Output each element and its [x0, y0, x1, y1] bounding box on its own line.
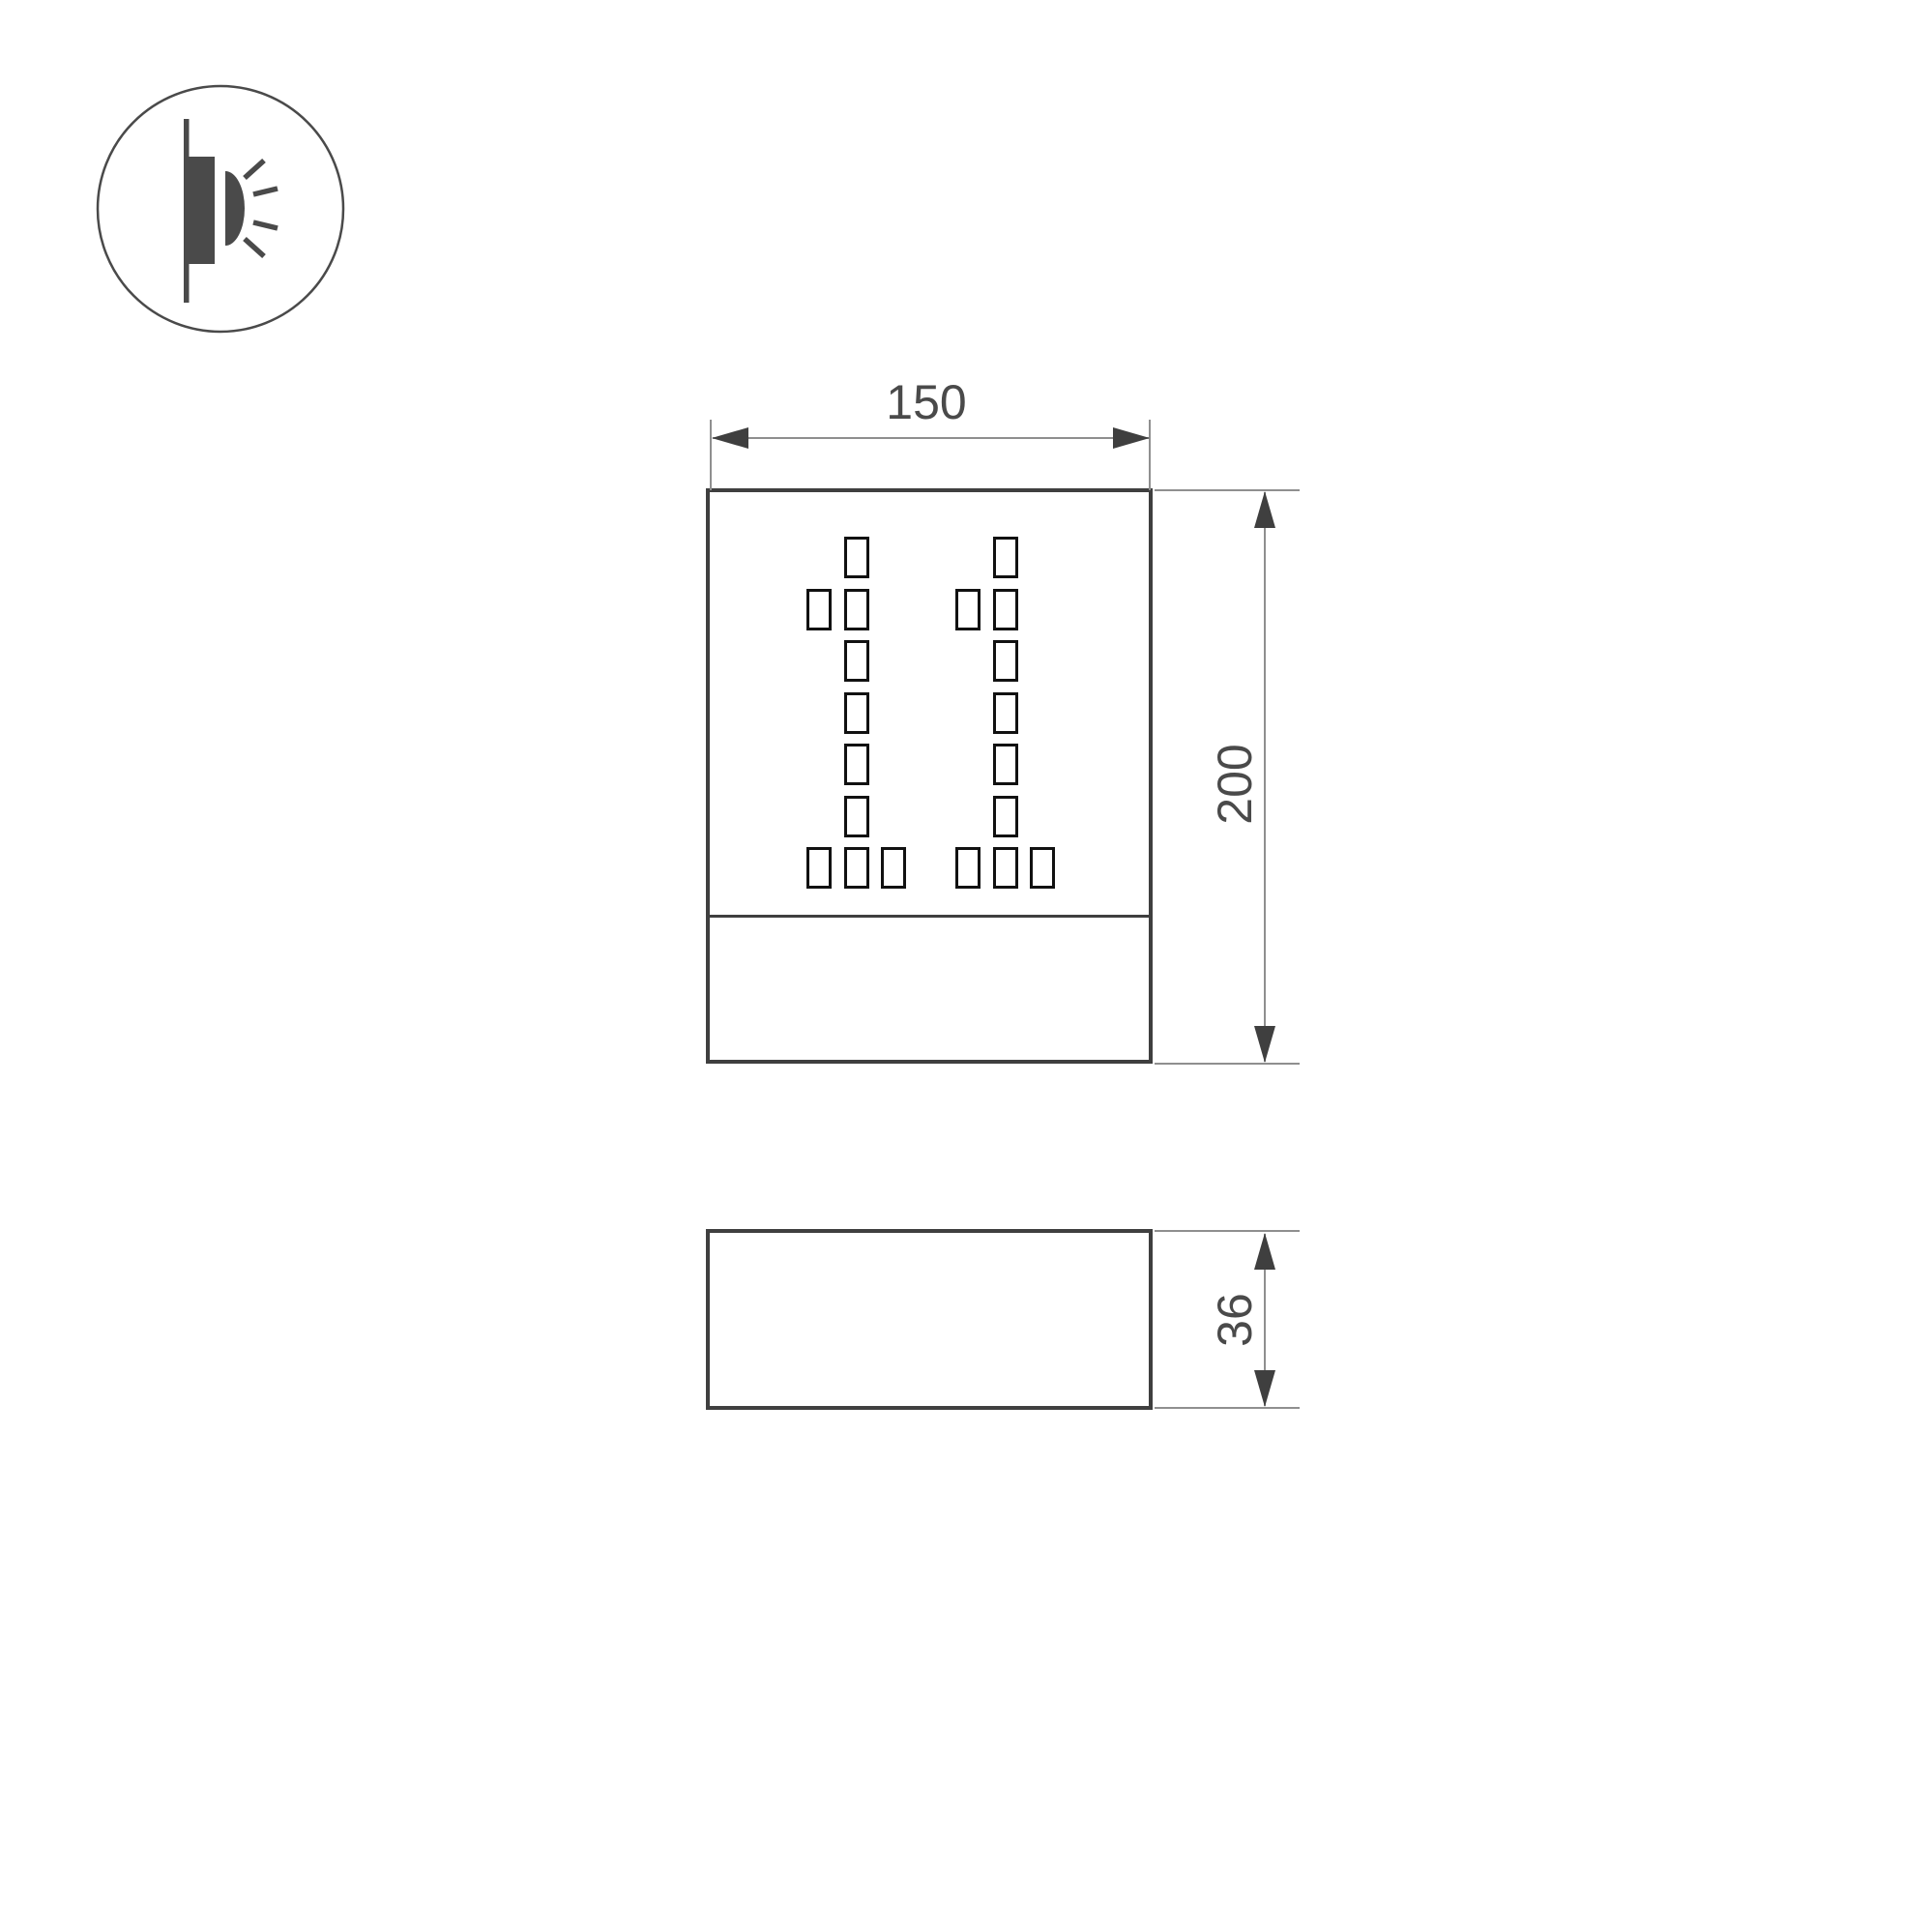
- perforation-hole: [993, 796, 1018, 837]
- perforation-hole: [844, 589, 869, 630]
- height-extension-line-bottom: [1155, 1063, 1300, 1065]
- display-digit-left: [806, 537, 906, 889]
- perforation-hole: [993, 744, 1018, 785]
- perforation-gap: [806, 537, 832, 578]
- perforation-gap: [881, 640, 906, 682]
- perforation-hole: [993, 589, 1018, 630]
- perforation-gap: [806, 744, 832, 785]
- perforation-hole: [993, 537, 1018, 578]
- width-dimension-line: [713, 437, 1149, 439]
- perforation-gap: [881, 692, 906, 734]
- perforation-hole: [806, 847, 832, 889]
- perforation-hole: [1030, 847, 1055, 889]
- wall-mounted-light-emission-icon: [95, 83, 346, 335]
- perforation-hole: [955, 589, 981, 630]
- perforation-gap: [881, 744, 906, 785]
- perforation-hole: [955, 847, 981, 889]
- perforation-gap: [1030, 692, 1055, 734]
- width-arrowhead-left: [712, 427, 748, 449]
- perforation-gap: [806, 640, 832, 682]
- fixture-body: [189, 157, 215, 264]
- perforation-gap: [806, 692, 832, 734]
- perforation-gap: [881, 537, 906, 578]
- perforation-hole: [844, 537, 869, 578]
- perforation-gap: [1030, 796, 1055, 837]
- perforation-hole: [993, 847, 1018, 889]
- height-dimension-label: 200: [1210, 688, 1260, 881]
- perforation-hole: [806, 589, 832, 630]
- height-extension-line-top: [1155, 489, 1300, 491]
- perforation-gap: [955, 692, 981, 734]
- perforation-hole: [993, 692, 1018, 734]
- perforation-gap: [1030, 744, 1055, 785]
- light-lens: [225, 171, 245, 246]
- drawing-canvas: 150 200 36: [0, 0, 1932, 1932]
- perforation-gap: [955, 744, 981, 785]
- perforation-hole: [881, 847, 906, 889]
- width-arrowhead-right: [1113, 427, 1150, 449]
- perforation-hole: [844, 847, 869, 889]
- perforation-gap: [955, 796, 981, 837]
- perforation-gap: [955, 640, 981, 682]
- side-view-outline: [706, 1229, 1153, 1410]
- height-dimension-line: [1264, 492, 1266, 1062]
- perforation-gap: [1030, 537, 1055, 578]
- perforation-gap: [881, 589, 906, 630]
- perforation-gap: [955, 537, 981, 578]
- light-rays: [245, 161, 278, 256]
- perforation-gap: [1030, 640, 1055, 682]
- perforation-hole: [844, 640, 869, 682]
- display-digit-right: [955, 537, 1055, 889]
- front-view-outline: [706, 488, 1153, 1064]
- icon-circle-border: [98, 86, 343, 332]
- perforation-hole: [844, 744, 869, 785]
- perforation-hole: [844, 692, 869, 734]
- wall-line: [184, 119, 190, 303]
- perforation-hole: [844, 796, 869, 837]
- perforation-hole: [993, 640, 1018, 682]
- height-arrowhead-bottom: [1254, 1026, 1275, 1063]
- perforation-gap: [1030, 589, 1055, 630]
- perforation-gap: [881, 796, 906, 837]
- front-view-divider-line: [710, 915, 1149, 918]
- width-dimension-label: 150: [830, 377, 1023, 427]
- perforation-gap: [806, 796, 832, 837]
- depth-dimension-label: 36: [1210, 1223, 1260, 1417]
- height-arrowhead-top: [1254, 491, 1275, 528]
